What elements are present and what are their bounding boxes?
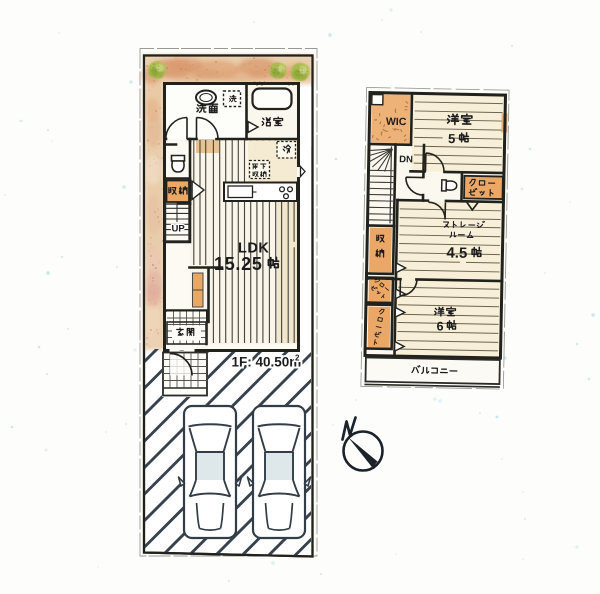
svg-text:DN: DN	[399, 154, 413, 165]
svg-text:WIC: WIC	[386, 116, 407, 128]
svg-text:5: 5	[448, 131, 456, 146]
svg-text:6: 6	[436, 319, 443, 333]
svg-text:1F: 40.50m: 1F: 40.50m	[232, 355, 302, 370]
svg-text:15.25: 15.25	[214, 254, 263, 274]
svg-text:UP: UP	[172, 224, 186, 235]
svg-text:4.5: 4.5	[446, 244, 467, 261]
svg-text:2: 2	[295, 354, 300, 363]
